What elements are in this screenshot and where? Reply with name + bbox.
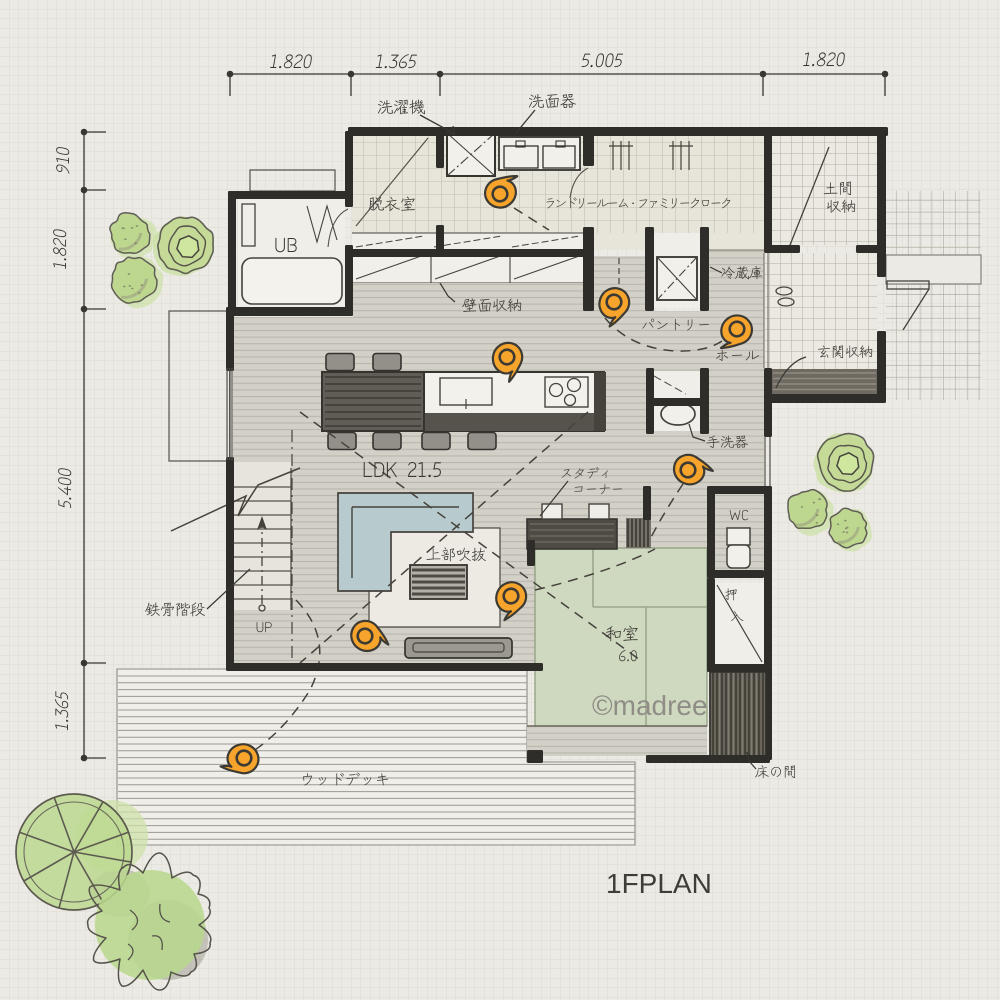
svg-text:1FPLAN: 1FPLAN: [606, 868, 712, 899]
svg-text:©madree: ©madree: [592, 690, 708, 721]
